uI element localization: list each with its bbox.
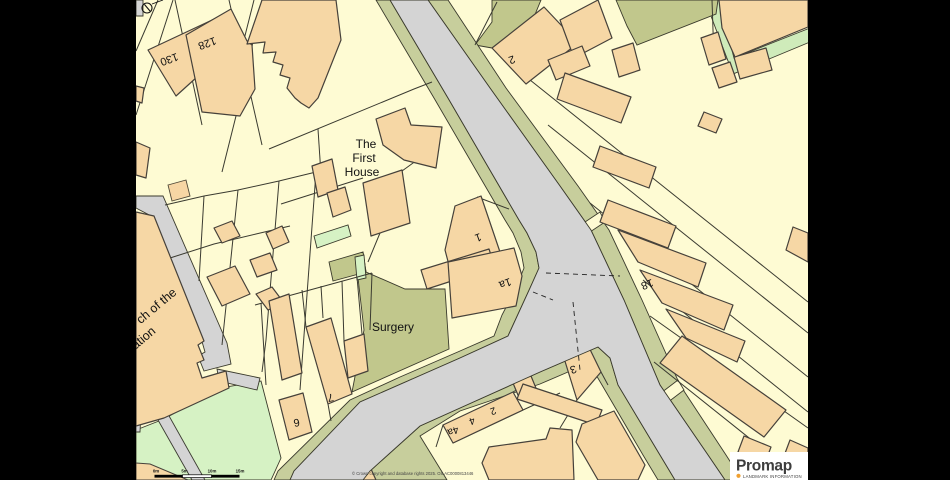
svg-text:Promap: Promap [736, 458, 792, 475]
svg-text:First: First [352, 151, 376, 165]
svg-text:The: The [356, 137, 377, 151]
svg-text:0m: 0m [153, 469, 159, 474]
svg-text:Surgery: Surgery [372, 320, 414, 334]
svg-text:House: House [345, 165, 380, 179]
svg-text:15m: 15m [236, 469, 245, 474]
svg-text:LANDMARK INFORMATION: LANDMARK INFORMATION [743, 474, 802, 479]
svg-text:5m: 5m [181, 469, 187, 474]
svg-text:© Crown copyright and database: © Crown copyright and database rights 20… [352, 471, 474, 476]
svg-text:10m: 10m [208, 469, 217, 474]
